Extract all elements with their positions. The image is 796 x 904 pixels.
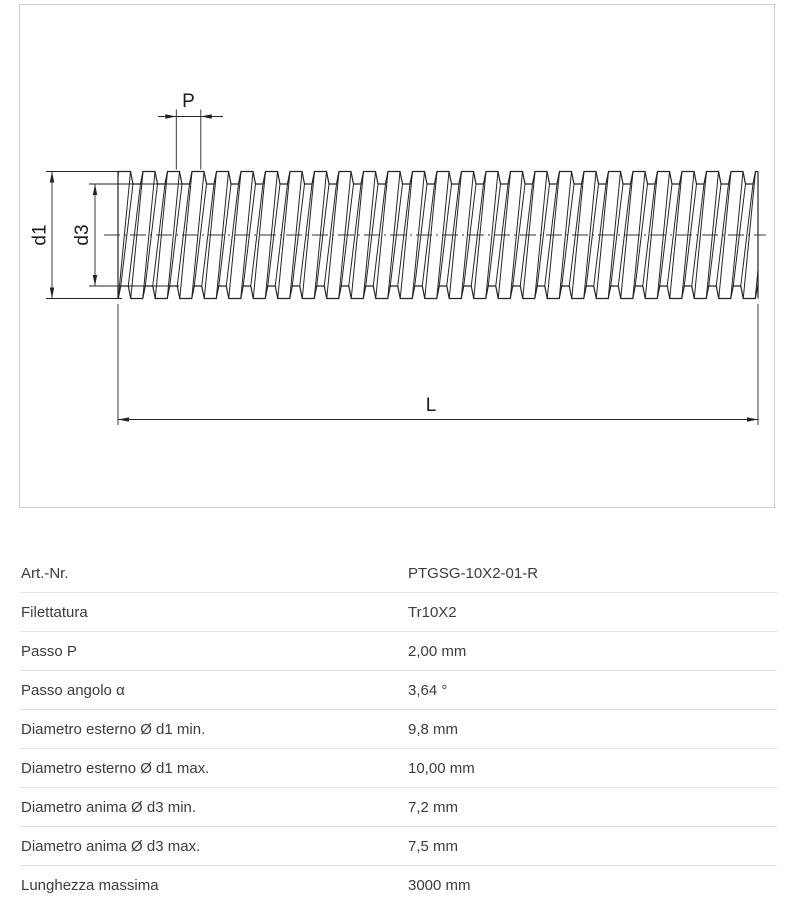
table-row: FilettaturaTr10X2 [20, 593, 777, 632]
arrowhead-right-icon [165, 114, 176, 118]
spec-value: 3000 mm [408, 877, 471, 894]
length-label: L [426, 395, 437, 416]
table-row: Diametro anima Ø d3 min.7,2 mm [20, 788, 777, 827]
technical-drawing-panel: P d1 d3 [19, 4, 775, 508]
table-row: Diametro esterno Ø d1 min.9,8 mm [20, 710, 777, 749]
spec-label: Diametro esterno Ø d1 max. [20, 760, 209, 777]
table-row: Passo P2,00 mm [20, 632, 777, 671]
spec-label: Art.-Nr. [20, 565, 69, 582]
spec-value: 2,00 mm [408, 643, 466, 660]
length-dimension [118, 304, 758, 425]
spec-table: Art.-Nr.PTGSG-10X2-01-RFilettaturaTr10X2… [20, 554, 777, 904]
arrowhead-down-icon [93, 275, 97, 286]
spec-label: Passo angolo α [20, 682, 125, 699]
product-spec-page: P d1 d3 [0, 0, 796, 904]
table-row: Art.-Nr.PTGSG-10X2-01-R [20, 554, 777, 593]
arrowhead-down-icon [50, 288, 54, 299]
arrowhead-up-icon [50, 172, 54, 183]
outer-diameter-label: d1 [30, 224, 51, 245]
spec-value: PTGSG-10X2-01-R [408, 565, 538, 582]
lead-screw-drawing: P d1 d3 [20, 5, 774, 507]
spec-value: Tr10X2 [408, 604, 457, 621]
core-diameter-label: d3 [72, 224, 93, 245]
spec-value: 7,2 mm [408, 799, 458, 816]
spec-label: Lunghezza massima [20, 877, 159, 894]
spec-label: Filettatura [20, 604, 88, 621]
spec-value: 3,64 ° [408, 682, 447, 699]
thread-top-profile [92, 172, 775, 185]
arrowhead-left-icon [118, 417, 129, 421]
pitch-label: P [182, 91, 195, 112]
table-row: Diametro anima Ø d3 max.7,5 mm [20, 827, 777, 866]
spec-value: 7,5 mm [408, 838, 458, 855]
arrowhead-up-icon [93, 184, 97, 195]
arrowhead-right-icon [747, 417, 758, 421]
spec-label: Diametro anima Ø d3 min. [20, 799, 196, 816]
spec-label: Diametro esterno Ø d1 min. [20, 721, 205, 738]
arrowhead-left-icon [201, 114, 212, 118]
table-row: Diametro esterno Ø d1 max.10,00 mm [20, 749, 777, 788]
spec-label: Passo P [20, 643, 77, 660]
spec-value: 9,8 mm [408, 721, 458, 738]
spec-value: 10,00 mm [408, 760, 475, 777]
table-row: Lunghezza massima3000 mm [20, 866, 777, 904]
pitch-dimension [158, 110, 223, 170]
table-row: Passo angolo α3,64 ° [20, 671, 777, 710]
spec-label: Diametro anima Ø d3 max. [20, 838, 200, 855]
